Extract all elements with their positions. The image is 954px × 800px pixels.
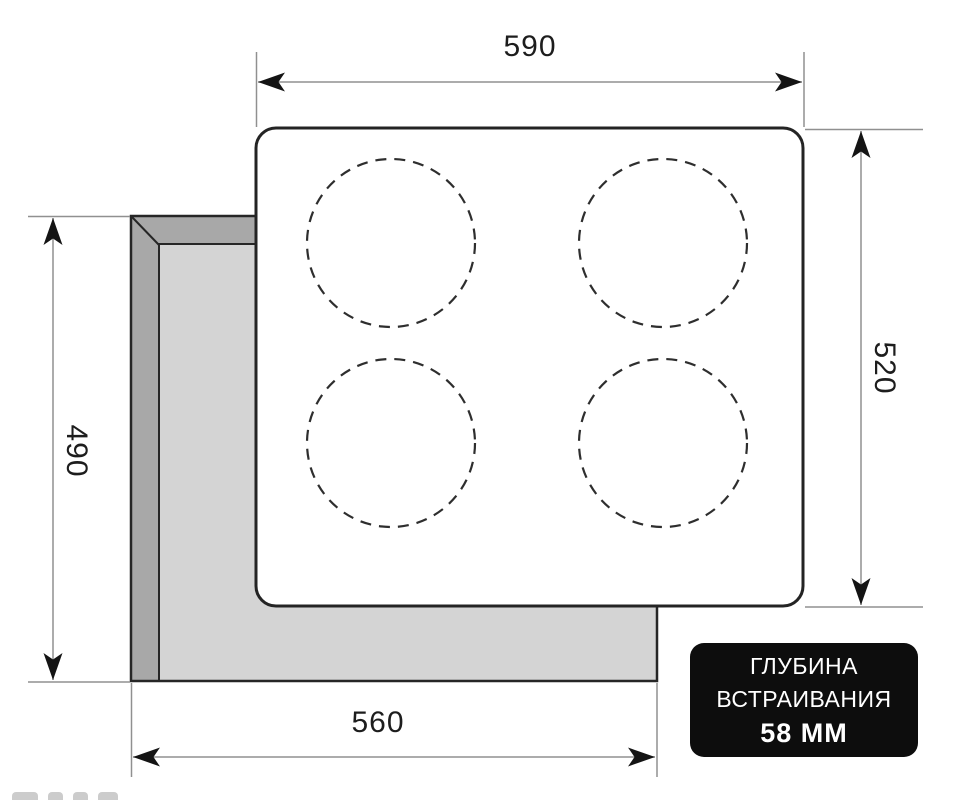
cropped-watermark	[12, 792, 118, 800]
cooktop-panel	[256, 128, 803, 606]
dimension-right-height	[805, 130, 923, 608]
badge-line-2: ВСТРАИВАНИЯ	[716, 683, 891, 716]
badge-depth-value: 58 ММ	[760, 716, 848, 751]
dimension-label-top-width: 590	[503, 30, 556, 64]
diagram-canvas: 590 520 490 560 ГЛУБИНА ВСТРАИВАНИЯ 58 М…	[0, 0, 954, 800]
dimension-label-bottom-width: 560	[351, 706, 404, 740]
watermark-fragment	[12, 792, 38, 800]
installation-depth-badge: ГЛУБИНА ВСТРАИВАНИЯ 58 ММ	[690, 643, 918, 757]
dimension-label-right-height: 520	[867, 341, 901, 394]
watermark-fragment	[48, 792, 63, 800]
badge-line-1: ГЛУБИНА	[750, 650, 858, 683]
dimension-label-left-height: 490	[59, 424, 93, 477]
watermark-fragment	[98, 792, 118, 800]
watermark-fragment	[73, 792, 88, 800]
